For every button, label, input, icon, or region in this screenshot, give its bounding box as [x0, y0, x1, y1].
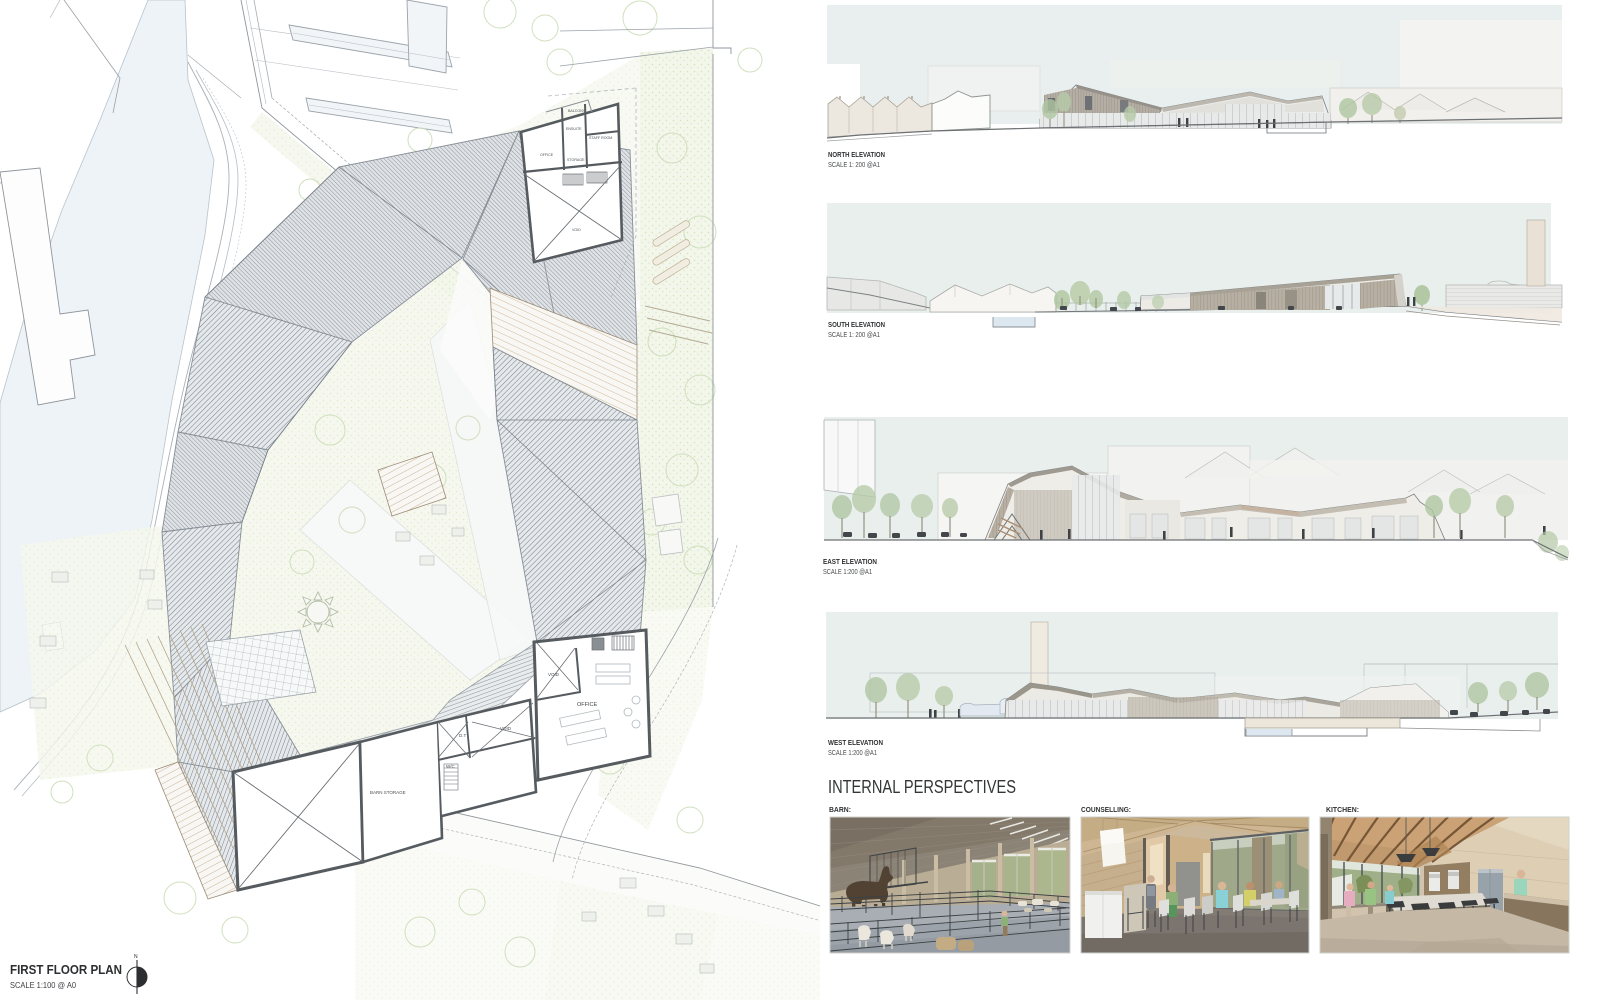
- svg-text:ENSUITE: ENSUITE: [566, 127, 582, 131]
- svg-text:SCALE 1: 200 @A1: SCALE 1: 200 @A1: [828, 162, 880, 169]
- svg-text:STAFF ROOM: STAFF ROOM: [589, 136, 612, 140]
- svg-text:KITCHEN:: KITCHEN:: [1326, 805, 1359, 814]
- svg-text:VOID: VOID: [572, 228, 581, 232]
- svg-text:SCALE 1:200 @A1: SCALE 1:200 @A1: [828, 750, 877, 757]
- svg-text:SCALE 1:200 @A1: SCALE 1:200 @A1: [823, 569, 872, 576]
- svg-text:SCALE 1: 200 @A1: SCALE 1: 200 @A1: [828, 332, 880, 339]
- svg-text:OFFICE: OFFICE: [540, 153, 554, 157]
- svg-text:EAST ELEVATION: EAST ELEVATION: [823, 557, 877, 566]
- svg-text:INTERNAL PERSPECTIVES: INTERNAL PERSPECTIVES: [828, 777, 1016, 797]
- svg-text:SOUTH ELEVATION: SOUTH ELEVATION: [828, 320, 885, 329]
- svg-text:BARN STORAGE: BARN STORAGE: [370, 790, 406, 795]
- svg-text:VOID: VOID: [548, 672, 560, 677]
- svg-text:FIRST FLOOR PLAN: FIRST FLOOR PLAN: [10, 962, 122, 977]
- svg-text:NORTH ELEVATION: NORTH ELEVATION: [828, 150, 885, 159]
- svg-text:OFFICE: OFFICE: [577, 702, 597, 708]
- svg-text:STORAGE: STORAGE: [567, 158, 585, 162]
- svg-text:BARN:: BARN:: [829, 805, 851, 814]
- svg-text:N: N: [134, 954, 138, 960]
- svg-text:BALCONY: BALCONY: [568, 109, 586, 113]
- svg-text:SCALE 1:100 @ A0: SCALE 1:100 @ A0: [10, 980, 76, 990]
- svg-text:COUNSELLING:: COUNSELLING:: [1081, 805, 1131, 814]
- svg-text:VOID: VOID: [500, 726, 512, 731]
- svg-text:WEST ELEVATION: WEST ELEVATION: [828, 738, 883, 747]
- svg-text:D.T: D.T: [459, 733, 467, 738]
- svg-text:W/C: W/C: [446, 764, 455, 769]
